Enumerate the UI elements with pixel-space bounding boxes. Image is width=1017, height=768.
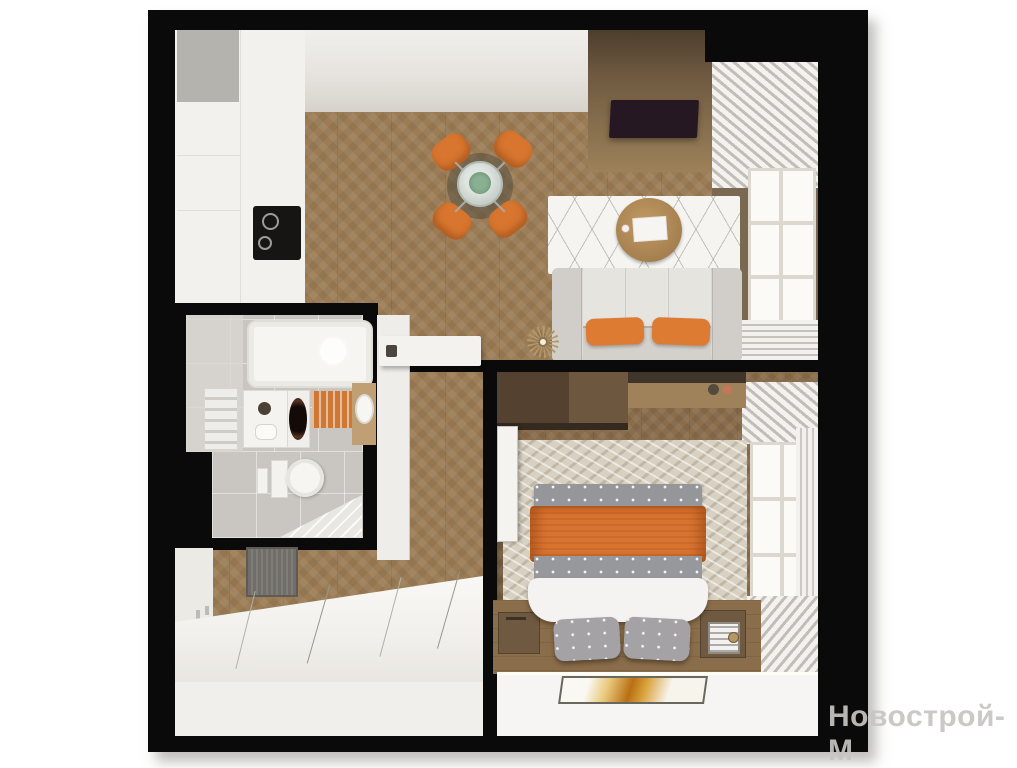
light-switch bbox=[196, 610, 200, 619]
living-window bbox=[748, 168, 816, 332]
bathtub bbox=[247, 320, 373, 388]
tv-screen bbox=[609, 100, 699, 138]
kitchen-cabinet-seam bbox=[240, 30, 241, 305]
sofa-cushion-orange bbox=[652, 317, 711, 346]
sofa-cushion-orange bbox=[586, 317, 645, 346]
bed-sheet-white bbox=[528, 578, 708, 622]
console-item bbox=[386, 345, 397, 357]
window-mullion bbox=[751, 275, 813, 279]
cabinet-towel-roll bbox=[255, 424, 277, 440]
window-mullion bbox=[780, 445, 784, 607]
light-switch bbox=[205, 606, 209, 615]
desk-item bbox=[708, 384, 719, 395]
bed-pillow bbox=[623, 616, 691, 661]
bed-blanket-orange bbox=[530, 506, 706, 562]
bedroom-left-wall bbox=[483, 360, 497, 736]
coffee-table-book bbox=[632, 216, 668, 242]
sofa-armrest bbox=[712, 268, 742, 362]
sofa-seats bbox=[583, 268, 711, 326]
top-right-wall-notch bbox=[705, 30, 818, 62]
ceiling-light-core bbox=[538, 337, 548, 347]
bedroom-curtain-side bbox=[796, 428, 818, 624]
window-mullion bbox=[751, 221, 813, 225]
nightstand-handle bbox=[506, 617, 526, 620]
kitchen-corner-cabinet bbox=[177, 30, 239, 102]
bed-pillow bbox=[553, 616, 621, 661]
toilet-paper-holder bbox=[257, 468, 268, 494]
watermark: Новострой-М bbox=[828, 700, 1017, 768]
bedroom-door-leaf bbox=[497, 426, 518, 542]
kitchen-cabinet-seam bbox=[177, 210, 240, 211]
toilet-bowl bbox=[286, 459, 324, 497]
window-mullion bbox=[779, 171, 783, 329]
living-curtain-top bbox=[712, 40, 818, 188]
doormat bbox=[246, 547, 298, 597]
cooktop-burner bbox=[258, 236, 272, 250]
kitchen-cabinet-seam bbox=[177, 155, 240, 156]
floor-plan-render: Новострой-М bbox=[0, 0, 1017, 768]
coffee-table-cup bbox=[621, 224, 630, 233]
bedroom-wardrobe bbox=[497, 372, 628, 430]
wall-art bbox=[558, 676, 708, 704]
bathtub-light bbox=[320, 338, 346, 364]
cabinet-item bbox=[258, 402, 271, 415]
towel-radiator bbox=[204, 388, 238, 450]
cooktop bbox=[253, 206, 301, 260]
top-wall-band bbox=[305, 30, 588, 112]
cooktop-burner bbox=[262, 213, 279, 230]
desk-cup bbox=[723, 385, 732, 394]
sink bbox=[355, 394, 374, 424]
frame-clock bbox=[728, 632, 739, 643]
washing-machine-door bbox=[289, 398, 307, 440]
table-centerpiece-plant bbox=[469, 172, 491, 194]
entry-lower-wall bbox=[175, 682, 483, 736]
